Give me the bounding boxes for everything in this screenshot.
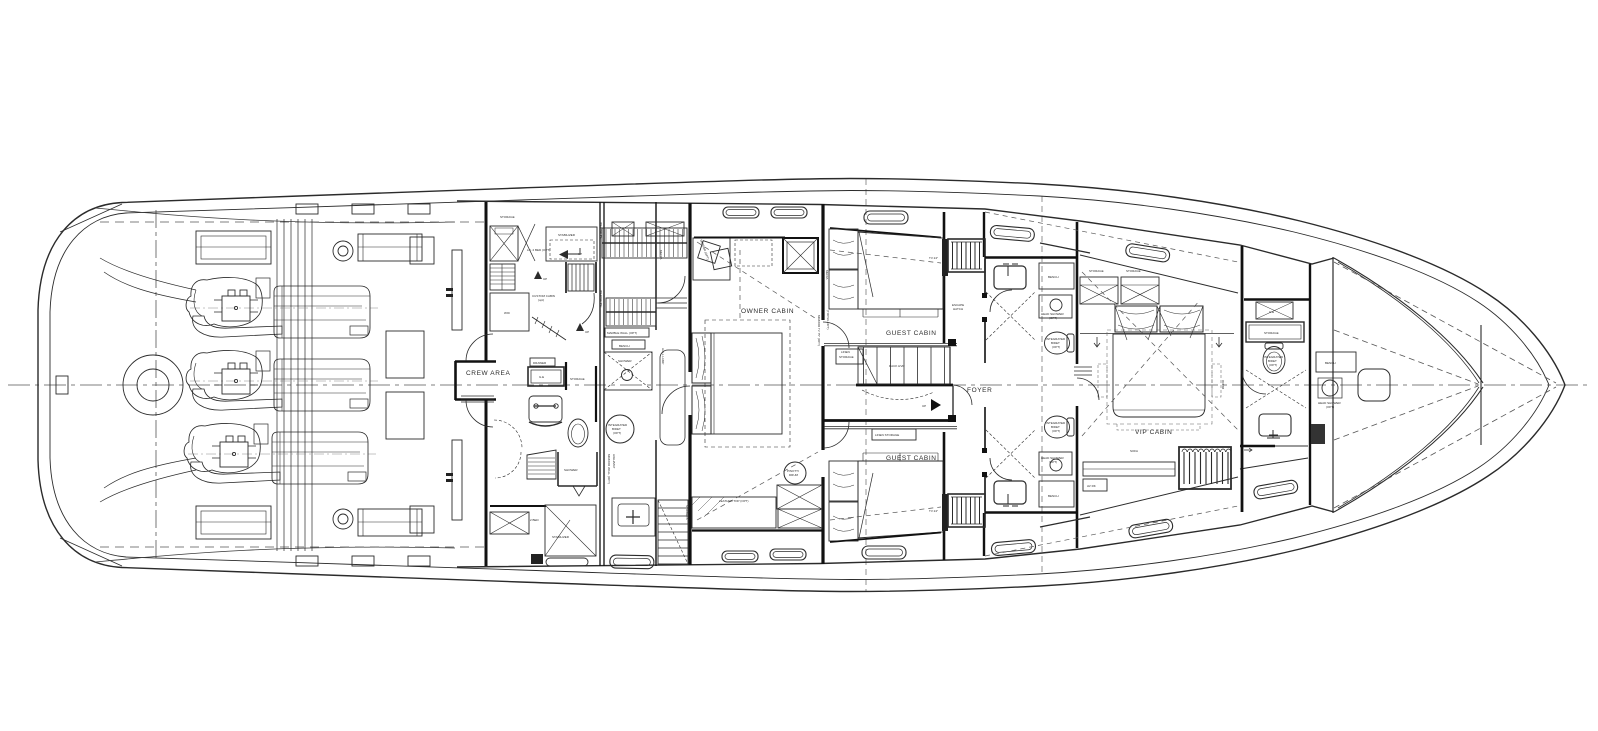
svg-text:RACK HVR: RACK HVR — [889, 364, 905, 368]
svg-text:STORAGE: STORAGE — [1126, 269, 1141, 273]
svg-text:BENCH: BENCH — [1048, 275, 1059, 279]
svg-text:OWNER CABIN: OWNER CABIN — [741, 308, 794, 315]
svg-text:MIRROR TV 75" (OPT): MIRROR TV 75" (OPT) — [817, 315, 821, 346]
svg-text:(OPT): (OPT) — [1269, 363, 1277, 367]
svg-text:G.E: G.E — [539, 375, 544, 379]
svg-text:STORAGE: STORAGE — [1089, 269, 1104, 273]
svg-text:2 BED: 2 BED — [530, 518, 540, 522]
svg-text:(opt): (opt) — [538, 298, 544, 302]
svg-text:MARBLE WALL (OPT): MARBLE WALL (OPT) — [607, 331, 637, 335]
svg-text:(OPT): (OPT) — [1326, 405, 1334, 409]
svg-text:LINEN STORAGE: LINEN STORAGE — [875, 433, 899, 437]
svg-text:UP: UP — [578, 252, 582, 256]
svg-text:UP: UP — [922, 404, 926, 408]
svg-text:STABILIZER: STABILIZER — [558, 233, 576, 237]
svg-text:WARDROBE: WARDROBE — [599, 290, 603, 308]
svg-text:WARDROBE: WARDROBE — [599, 222, 603, 240]
svg-text:HATCH: HATCH — [953, 307, 963, 311]
svg-text:VIP CABIN: VIP CABIN — [1135, 429, 1172, 436]
svg-text:STORAGE: STORAGE — [1264, 331, 1279, 335]
svg-text:LEATHER TOP (OPT): LEATHER TOP (OPT) — [719, 499, 748, 503]
svg-text:BENCH: BENCH — [1048, 494, 1059, 498]
svg-text:AV RK: AV RK — [1087, 484, 1096, 488]
svg-text:UP: UP — [543, 277, 547, 281]
svg-text:(OPT): (OPT) — [613, 431, 621, 435]
svg-text:MEDIA: MEDIA — [659, 250, 663, 260]
svg-text:LINEN: LINEN — [841, 350, 850, 354]
svg-text:(OPT): (OPT) — [1052, 345, 1060, 349]
svg-text:HIGH/MAT: HIGH/MAT — [612, 454, 616, 469]
svg-text:SHOWER: SHOWER — [618, 359, 632, 363]
svg-text:UP: UP — [585, 330, 589, 334]
svg-text:TV 24": TV 24" — [929, 256, 938, 260]
svg-text:BENCH: BENCH — [619, 344, 630, 348]
svg-text:GUEST CABIN: GUEST CABIN — [886, 330, 937, 337]
svg-text:STORAGE: STORAGE — [570, 377, 585, 381]
svg-text:STORAGE: STORAGE — [839, 355, 854, 359]
svg-text:(OPT): (OPT) — [1052, 429, 1060, 433]
svg-text:MIRROR WALL (OPT): MIRROR WALL (OPT) — [607, 454, 611, 484]
svg-text:LN. 2 BED (OPT): LN. 2 BED (OPT) — [527, 248, 550, 252]
svg-text:MEDIA: MEDIA — [825, 270, 829, 280]
svg-text:DRAWER: DRAWER — [533, 361, 547, 365]
svg-text:(TOPSIL OPT): (TOPSIL OPT) — [826, 310, 830, 330]
svg-text:HALL LAMP: HALL LAMP — [661, 348, 665, 364]
svg-text:STABILIZER: STABILIZER — [552, 535, 570, 539]
svg-text:STOWELS: STOWELS — [685, 505, 689, 520]
svg-text:GUEST CABIN: GUEST CABIN — [886, 455, 937, 462]
svg-text:CREW AREA: CREW AREA — [466, 370, 510, 377]
svg-text:STORAGE: STORAGE — [500, 215, 515, 219]
svg-text:DRUM: DRUM — [789, 473, 798, 477]
svg-text:FOYER: FOYER — [967, 387, 992, 394]
svg-text:TV 24": TV 24" — [929, 509, 938, 513]
svg-text:SOFA: SOFA — [1130, 449, 1138, 453]
svg-text:SHOWER: SHOWER — [564, 468, 578, 472]
svg-text:BENCH: BENCH — [1325, 361, 1336, 365]
svg-text:W/D: W/D — [504, 311, 511, 315]
svg-text:G.E: G.E — [1269, 310, 1274, 314]
svg-text:(OPT): (OPT) — [1049, 316, 1057, 320]
svg-text:DORM: DORM — [1221, 380, 1225, 390]
svg-text:(OPT): (OPT) — [1049, 460, 1057, 464]
